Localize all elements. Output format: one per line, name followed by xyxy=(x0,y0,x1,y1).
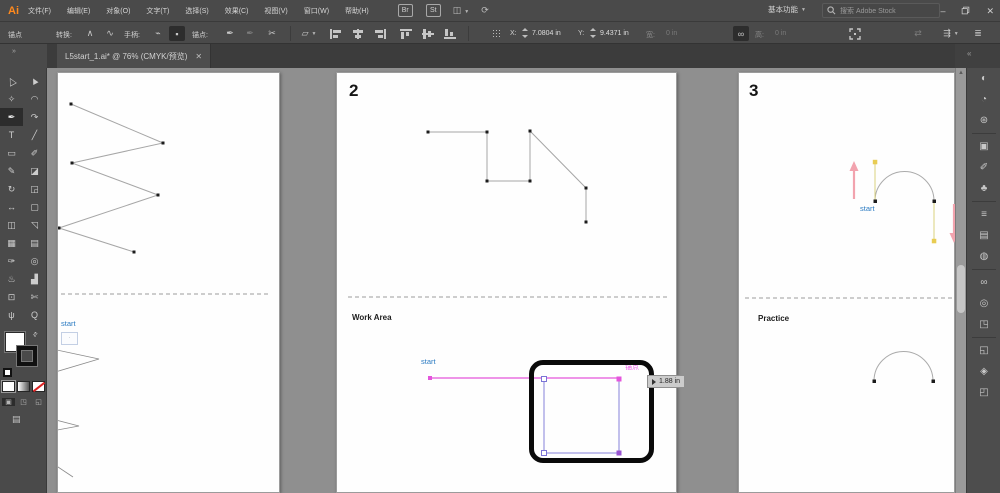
width-label: 宽: xyxy=(646,30,655,40)
convert-to-corner-button[interactable]: ∧ xyxy=(82,26,98,41)
rectangle-tool[interactable]: ▭ xyxy=(0,144,23,162)
color-guide-panel-button[interactable]: ◔ xyxy=(967,89,1000,110)
add-anchor-button[interactable]: ✒ xyxy=(222,26,238,41)
recolor-artwork-button[interactable]: ⇄ xyxy=(910,26,926,41)
lasso-tool[interactable]: ◠ xyxy=(23,90,46,108)
separator xyxy=(290,26,291,41)
draw-normal-button[interactable]: ▣ xyxy=(2,398,15,406)
layers-panel-icon: ◈ xyxy=(980,366,988,377)
dock-separator xyxy=(972,337,996,338)
menu-bar: Ai 文件(F)编辑(E)对象(O)文字(T)选择(S)效果(C)视图(V)窗口… xyxy=(0,0,1000,22)
cut-path-button[interactable]: ✂ xyxy=(264,26,280,41)
gradient-tool-icon: ▤ xyxy=(30,238,39,249)
handles-label: 手柄: xyxy=(124,30,140,40)
adobe-stock-button[interactable]: St xyxy=(426,4,441,17)
asset-export-panel-button[interactable]: ◰ xyxy=(967,382,1000,403)
x-value[interactable]: 7.0804 in xyxy=(532,30,561,37)
chevron-down-icon: ▼ xyxy=(954,31,959,37)
eraser-tool[interactable]: ◪ xyxy=(23,162,46,180)
panel-dock: ◐◔⊛▣✐♣≡▤◍∞◎◳◱◈◰ xyxy=(966,68,1000,493)
hand-tool-icon: ψ xyxy=(8,310,14,320)
gradient-panel-button[interactable]: ▤ xyxy=(967,225,1000,246)
menu-item-2[interactable]: 对象(O) xyxy=(106,6,130,16)
scale-tool[interactable]: ◲ xyxy=(23,180,46,198)
practice-label: Practice xyxy=(758,314,789,323)
scrollbar-thumb[interactable] xyxy=(957,265,965,313)
separator xyxy=(468,26,469,41)
curvature-tool-icon: ↷ xyxy=(31,112,39,123)
shape-builder-tool-icon: ◫ xyxy=(7,220,16,231)
isolate-selection-button[interactable] xyxy=(845,26,865,41)
measurement-tooltip: 1.88 in xyxy=(647,375,685,388)
x-stepper[interactable] xyxy=(522,28,528,38)
illustrator-logo: Ai xyxy=(8,5,19,17)
menu-item-7[interactable]: 窗口(W) xyxy=(304,6,329,16)
height-value: 0 in xyxy=(775,30,786,37)
draw-inside-button[interactable]: ◱ xyxy=(32,398,45,406)
swap-fill-stroke-button[interactable]: ⇄ xyxy=(31,330,40,339)
align-vertical-top-button[interactable] xyxy=(398,26,414,41)
info-panel-icon: ▣ xyxy=(979,141,988,152)
pen-tool-icon: ✒ xyxy=(8,112,16,123)
menu-item-0[interactable]: 文件(F) xyxy=(28,6,51,16)
color-panel-icon: ◐ xyxy=(981,73,987,84)
change-screen-mode-button[interactable]: ▤ xyxy=(12,414,21,425)
constrain-proportions-button[interactable]: ∞ xyxy=(733,26,749,41)
brushes-panel-button[interactable]: ✐ xyxy=(967,157,1000,178)
pattern-options-panel-button[interactable]: ⊛ xyxy=(967,110,1000,131)
scale-tool-icon: ◲ xyxy=(30,184,39,195)
hand-tool[interactable]: ψ xyxy=(0,306,23,324)
appearance-panel-button[interactable]: ◎ xyxy=(967,293,1000,314)
document-tab[interactable]: L5start_1.ai* @ 76% (CMYK/预览) ✕ xyxy=(57,44,211,68)
width-tool-icon: ↔ xyxy=(7,202,16,212)
symbol-sprayer-tool-icon: ♨ xyxy=(7,274,15,285)
align-horizontal-left-button[interactable] xyxy=(328,26,344,41)
y-value[interactable]: 9.4371 in xyxy=(600,30,629,37)
sync-status-icon[interactable]: ⟳ xyxy=(481,5,489,16)
stroke-panel-icon: ≡ xyxy=(981,209,987,220)
search-placeholder: 搜索 Adobe Stock xyxy=(840,6,896,16)
menu-item-8[interactable]: 帮助(H) xyxy=(345,6,369,16)
slice-tool[interactable]: ✄ xyxy=(23,288,46,306)
start-label: start xyxy=(61,319,76,328)
eyedropper-tool-icon: ✑ xyxy=(8,256,16,267)
rotate-tool-icon: ↻ xyxy=(8,184,16,195)
menu-item-3[interactable]: 文字(T) xyxy=(146,6,169,16)
type-tool[interactable]: T xyxy=(0,126,23,144)
start-label: start xyxy=(860,204,875,213)
artboards-panel-button[interactable]: ◱ xyxy=(967,340,1000,361)
arrange-documents-icon[interactable]: ◫▼ xyxy=(453,5,469,16)
blend-tool[interactable]: ◎ xyxy=(23,252,46,270)
symbols-panel-button[interactable]: ♣ xyxy=(967,178,1000,199)
transparency-panel-icon: ◍ xyxy=(980,251,989,262)
selection-type-label: 锚点 xyxy=(8,30,22,40)
paintbrush-tool-icon: ✐ xyxy=(31,148,39,159)
curvature-tool[interactable]: ↷ xyxy=(23,108,46,126)
magic-wand-tool-icon: ✧ xyxy=(8,94,16,105)
transparency-panel-button[interactable]: ◍ xyxy=(967,246,1000,267)
restore-button[interactable] xyxy=(961,6,970,17)
gradient-button[interactable] xyxy=(17,381,30,392)
tools-panel: △▲✧◠✒↷T╱▭✐✎◪↻◲↔▢◫◹▦▤✑◎♨▟⊡✄ψQ ⇄ ▣ ◳ ◱ ▤ xyxy=(0,68,47,493)
dock-separator xyxy=(972,269,996,270)
canvas[interactable]: start · 2 Work Area start 锚点 xyxy=(47,68,955,493)
measurement-value: 1.88 in xyxy=(659,378,680,385)
close-tab-icon[interactable]: ✕ xyxy=(195,52,202,61)
color-mode-row xyxy=(2,381,45,392)
color-button[interactable] xyxy=(2,381,15,392)
artboard-2[interactable]: 2 Work Area start 锚点 1.88 in xyxy=(336,72,677,493)
panel-menu-button[interactable]: ≣ xyxy=(970,26,986,41)
align-horizontal-center-button[interactable] xyxy=(350,26,366,41)
rectangle-tool-icon: ▭ xyxy=(7,148,16,159)
perspective-grid-tool-icon: ◹ xyxy=(31,220,38,231)
column-graph-tool[interactable]: ▟ xyxy=(23,270,46,288)
info-panel-button[interactable]: ▣ xyxy=(967,136,1000,157)
document-tab-title: L5start_1.ai* @ 76% (CMYK/预览) xyxy=(65,51,187,62)
column-graph-tool-icon: ▟ xyxy=(31,274,38,285)
hide-handles-button[interactable]: ▪ xyxy=(169,26,185,41)
color-guide-panel-icon: ◔ xyxy=(981,94,987,105)
width-tool[interactable]: ↔ xyxy=(0,198,23,216)
anchors-label: 锚点: xyxy=(192,30,208,40)
width-value: 0 in xyxy=(666,30,677,37)
convert-to-smooth-button[interactable]: ∿ xyxy=(102,26,118,41)
artboard-3-paths xyxy=(739,73,955,493)
line-segment-tool-icon: ╱ xyxy=(32,130,37,141)
pattern-options-panel-icon: ⊛ xyxy=(980,115,988,126)
restore-icon xyxy=(961,6,970,15)
menu-item-4[interactable]: 选择(S) xyxy=(185,6,208,16)
stock-search-input[interactable]: 搜索 Adobe Stock xyxy=(822,3,940,18)
slice-tool-icon: ✄ xyxy=(31,292,39,303)
artboard-number: 2 xyxy=(349,81,358,101)
dock-separator xyxy=(972,201,996,202)
pencil-tool-icon: ✎ xyxy=(8,166,16,177)
align-horizontal-right-button[interactable] xyxy=(372,26,388,41)
workspace-label: 基本功能 xyxy=(768,4,798,15)
none-button[interactable] xyxy=(32,381,45,392)
panel-dock-header[interactable]: « xyxy=(955,44,1000,68)
document-tab-bar: L5start_1.ai* @ 76% (CMYK/预览) ✕ xyxy=(47,44,955,68)
blend-tool-icon: ◎ xyxy=(31,256,39,267)
y-stepper[interactable] xyxy=(590,28,596,38)
zoom-tool[interactable]: Q xyxy=(23,306,46,324)
lasso-tool-icon: ◠ xyxy=(31,94,39,105)
work-area-label: Work Area xyxy=(352,313,392,322)
corner-handles-icon xyxy=(849,28,861,40)
align-vertical-bottom-button[interactable] xyxy=(442,26,458,41)
menu-item-6[interactable]: 视图(V) xyxy=(264,6,287,16)
magic-wand-tool[interactable]: ✧ xyxy=(0,90,23,108)
asset-export-panel-icon: ◰ xyxy=(979,387,988,398)
tutorial-highlight-rect xyxy=(529,360,654,463)
artboard-number: 3 xyxy=(749,81,758,101)
draw-behind-button[interactable]: ◳ xyxy=(17,398,30,406)
graphic-styles-panel-icon: ◳ xyxy=(979,319,988,330)
free-transform-tool[interactable]: ▢ xyxy=(23,198,46,216)
artboard-3[interactable]: 3 start Practice xyxy=(738,72,955,493)
x-label: X: xyxy=(510,30,517,37)
pencil-tool[interactable]: ✎ xyxy=(0,162,23,180)
chevron-down-icon: ▼ xyxy=(801,7,806,13)
symbols-panel-icon: ♣ xyxy=(981,183,988,194)
artboard-tool[interactable]: ⊡ xyxy=(0,288,23,306)
drawing-modes-row: ▣ ◳ ◱ xyxy=(2,398,45,406)
chevron-down-icon: ▼ xyxy=(311,31,316,37)
zoom-tool-icon: Q xyxy=(31,310,38,320)
line-segment-tool[interactable]: ╱ xyxy=(23,126,46,144)
pen-tool[interactable]: ✒ xyxy=(0,108,23,126)
color-panel-button[interactable]: ◐ xyxy=(967,68,1000,89)
align-vertical-middle-button[interactable] xyxy=(420,26,436,41)
menu-item-1[interactable]: 编辑(E) xyxy=(67,6,90,16)
perspective-grid-tool[interactable]: ◹ xyxy=(23,216,46,234)
selection-tool-icon: △ xyxy=(6,74,18,87)
main-menu: 文件(F)编辑(E)对象(O)文字(T)选择(S)效果(C)视图(V)窗口(W)… xyxy=(28,0,385,21)
collapse-panel-icon: » xyxy=(12,48,15,55)
brushes-panel-icon: ✐ xyxy=(980,162,988,173)
free-transform-tool-icon: ▢ xyxy=(30,202,39,213)
control-bar: 锚点 转换: ∧ ∿ 手柄: ⌁ ▪ 锚点: ✒ ✒ ✂ ▱▼ X: 7.080… xyxy=(0,22,1000,44)
default-fill-stroke-button[interactable] xyxy=(3,368,12,377)
artboard-1[interactable]: start · xyxy=(57,72,280,493)
remove-anchor-button[interactable]: ✒ xyxy=(242,26,258,41)
pen-cursor-icon xyxy=(652,379,656,385)
mesh-tool[interactable]: ▦ xyxy=(0,234,23,252)
reference-point-widget[interactable] xyxy=(492,29,501,38)
close-button[interactable]: ✕ xyxy=(986,7,994,16)
tools-grid: △▲✧◠✒↷T╱▭✐✎◪↻◲↔▢◫◹▦▤✑◎♨▟⊡✄ψQ xyxy=(0,72,47,324)
type-tool-icon: T xyxy=(9,130,15,140)
bridge-button[interactable]: Br xyxy=(398,4,413,17)
direct-selection-tool-icon: ▲ xyxy=(28,74,42,88)
eraser-tool-icon: ◪ xyxy=(30,166,39,177)
shape-builder-tool[interactable]: ◫ xyxy=(0,216,23,234)
transform-menu-button[interactable]: ▱▼ xyxy=(298,26,320,41)
note-box: · xyxy=(61,332,78,345)
search-icon xyxy=(827,6,836,15)
stroke-options-button[interactable]: ⇶▼ xyxy=(940,26,962,41)
appearance-panel-icon: ◎ xyxy=(980,298,989,309)
expand-dock-icon: « xyxy=(967,49,971,58)
stroke-color-swatch[interactable] xyxy=(17,346,37,366)
tools-panel-header[interactable]: » xyxy=(0,44,47,68)
links-panel-icon: ∞ xyxy=(980,277,987,288)
links-panel-button[interactable]: ∞ xyxy=(967,272,1000,293)
paintbrush-tool[interactable]: ✐ xyxy=(23,144,46,162)
mesh-tool-icon: ▦ xyxy=(7,238,16,249)
rotate-tool[interactable]: ↻ xyxy=(0,180,23,198)
gradient-panel-icon: ▤ xyxy=(979,230,988,241)
convert-label: 转换: xyxy=(56,30,72,40)
artboards-panel-icon: ◱ xyxy=(979,345,988,356)
gradient-tool[interactable]: ▤ xyxy=(23,234,46,252)
layers-panel-button[interactable]: ◈ xyxy=(967,361,1000,382)
start-label: start xyxy=(421,357,436,366)
stroke-panel-button[interactable]: ≡ xyxy=(967,204,1000,225)
graphic-styles-panel-button[interactable]: ◳ xyxy=(967,314,1000,335)
menu-item-5[interactable]: 效果(C) xyxy=(225,6,249,16)
artboard-1-paths xyxy=(58,73,281,493)
eyedropper-tool[interactable]: ✑ xyxy=(0,252,23,270)
symbol-sprayer-tool[interactable]: ♨ xyxy=(0,270,23,288)
dock-separator xyxy=(972,133,996,134)
y-label: Y: xyxy=(578,30,584,37)
vertical-scrollbar[interactable]: ▲ xyxy=(955,68,966,493)
chevron-down-icon: ▼ xyxy=(464,9,469,15)
scroll-up-icon[interactable]: ▲ xyxy=(958,70,964,76)
show-handles-button[interactable]: ⌁ xyxy=(150,26,166,41)
height-label: 高: xyxy=(755,30,764,40)
workspace-switcher[interactable]: 基本功能 ▼ xyxy=(768,4,806,15)
artboard-tool-icon: ⊡ xyxy=(8,292,16,303)
minimize-button[interactable]: – xyxy=(940,7,945,16)
window-controls: – ✕ xyxy=(940,0,994,22)
